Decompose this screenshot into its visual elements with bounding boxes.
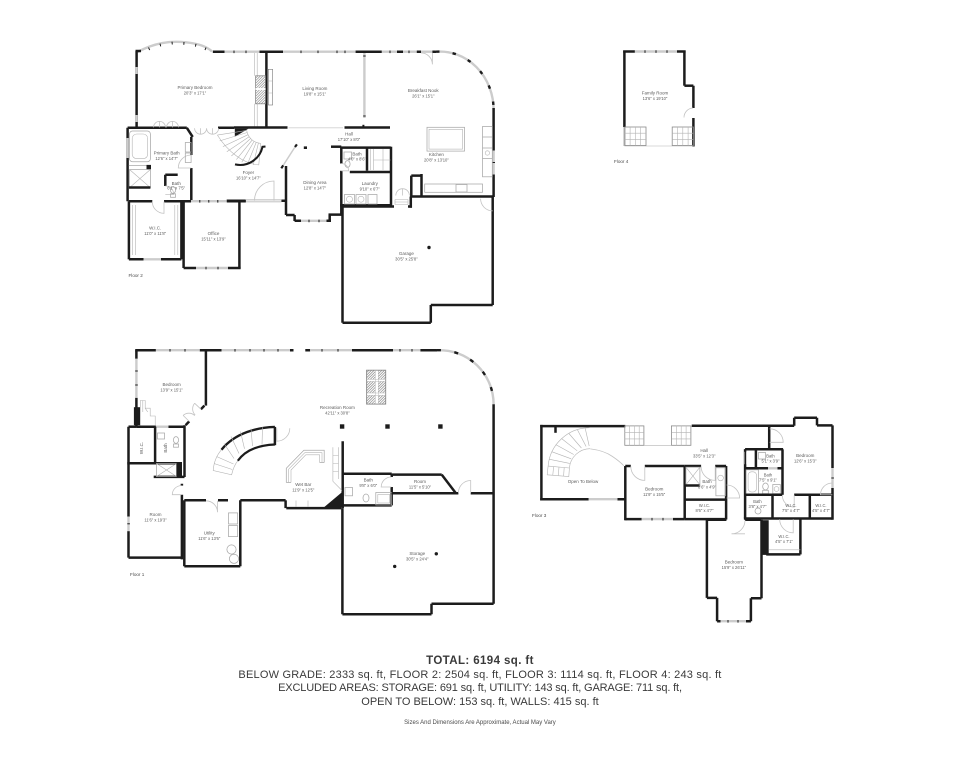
svg-text:7'5" x 4'7": 7'5" x 4'7"	[782, 508, 800, 513]
svg-text:Dining Area: Dining Area	[303, 180, 327, 185]
svg-text:13'6" x 19'10": 13'6" x 19'10"	[643, 96, 668, 101]
svg-text:Storage: Storage	[409, 551, 425, 556]
svg-text:Floor 3: Floor 3	[532, 513, 547, 518]
svg-text:Living Room: Living Room	[302, 86, 327, 91]
svg-text:Primary Bath: Primary Bath	[154, 151, 181, 156]
svg-text:Open To Below: Open To Below	[568, 479, 599, 484]
svg-text:Utility: Utility	[204, 531, 216, 536]
svg-text:8'6" x 4'9": 8'6" x 4'9"	[698, 485, 716, 490]
svg-text:Recreation Room: Recreation Room	[320, 405, 355, 410]
svg-text:13'9" x 15'1": 13'9" x 15'1"	[160, 388, 183, 393]
svg-text:26'1" x 15'1": 26'1" x 15'1"	[412, 94, 435, 99]
svg-text:4'5" x 4'7": 4'5" x 4'7"	[812, 508, 830, 513]
svg-text:Laundry: Laundry	[362, 181, 379, 186]
svg-text:9'8" x 6'0": 9'8" x 6'0"	[359, 483, 377, 488]
svg-text:30'5" x 24'4": 30'5" x 24'4"	[406, 557, 429, 562]
svg-text:Room: Room	[414, 479, 426, 484]
svg-text:Bedroom: Bedroom	[162, 382, 181, 387]
svg-text:Room: Room	[149, 512, 161, 517]
svg-text:Kitchen: Kitchen	[429, 152, 445, 157]
svg-text:11'9" x 15'5": 11'9" x 15'5"	[643, 492, 666, 497]
svg-text:42'11" x 30'8": 42'11" x 30'8"	[325, 411, 350, 416]
svg-text:Bedroom: Bedroom	[796, 453, 815, 458]
svg-text:6'1" x 7'5": 6'1" x 7'5"	[167, 186, 185, 191]
svg-text:9'10" x 6'7": 9'10" x 6'7"	[360, 187, 381, 192]
svg-text:Wet Bar: Wet Bar	[295, 482, 312, 487]
svg-text:Primary Bedroom: Primary Bedroom	[177, 85, 212, 90]
svg-text:Garage: Garage	[399, 251, 415, 256]
svg-text:8'6" x 4'7": 8'6" x 4'7"	[696, 508, 714, 513]
svg-text:19'8" x 15'1": 19'8" x 15'1"	[304, 92, 327, 97]
svg-text:Bedroom: Bedroom	[645, 487, 664, 492]
svg-text:20'8" x 13'10": 20'8" x 13'10"	[424, 158, 449, 163]
svg-text:16'10" x 14'7": 16'10" x 14'7"	[236, 176, 261, 181]
svg-text:Bath: Bath	[702, 479, 712, 484]
svg-text:Bath: Bath	[364, 478, 374, 483]
svg-text:Bedroom: Bedroom	[725, 560, 744, 565]
svg-text:15'9" x 26'11": 15'9" x 26'11"	[722, 565, 747, 570]
svg-text:17'10" x 8'0": 17'10" x 8'0"	[338, 137, 361, 142]
svg-text:11'0" x 11'8": 11'0" x 11'8"	[144, 231, 166, 236]
svg-text:12'6" x 14'7": 12'6" x 14'7"	[155, 156, 178, 161]
svg-text:Floor 4: Floor 4	[614, 159, 629, 164]
svg-text:5'1" x 3'9": 5'1" x 3'9"	[762, 459, 780, 464]
svg-text:Floor 2: Floor 2	[129, 273, 144, 278]
svg-text:11'6" x 13'6": 11'6" x 13'6"	[198, 536, 221, 541]
svg-text:7'5" x 9'1": 7'5" x 9'1"	[759, 478, 777, 483]
svg-text:15'11" x 13'9": 15'11" x 13'9"	[201, 237, 226, 242]
svg-text:4'5" x 7'1": 4'5" x 7'1"	[775, 539, 793, 544]
svg-text:Hall: Hall	[700, 448, 708, 453]
svg-text:4'0" x 8'6": 4'0" x 8'6"	[348, 157, 366, 162]
svg-text:12'6" x 15'3": 12'6" x 15'3"	[794, 459, 817, 464]
svg-text:Office: Office	[208, 231, 220, 236]
svg-text:3'8" x 4'7": 3'8" x 4'7"	[749, 504, 767, 509]
svg-text:20'3" x 17'1": 20'3" x 17'1"	[184, 91, 207, 96]
svg-text:Floor 1: Floor 1	[130, 572, 145, 577]
svg-text:Bath: Bath	[163, 443, 168, 453]
svg-text:11'5" x 5'10": 11'5" x 5'10"	[409, 485, 432, 490]
svg-text:Breakfast Nook: Breakfast Nook	[408, 88, 440, 93]
svg-text:33'5" x 12'3": 33'5" x 12'3"	[693, 454, 716, 459]
svg-text:12'8" x 14'7": 12'8" x 14'7"	[304, 186, 327, 191]
svg-text:11'9" x 12'5": 11'9" x 12'5"	[292, 488, 315, 493]
svg-text:11'6" x 19'3": 11'6" x 19'3"	[144, 518, 167, 523]
svg-text:W.I.C.: W.I.C.	[139, 442, 144, 454]
svg-text:30'5" x 25'8": 30'5" x 25'8"	[395, 257, 418, 262]
svg-text:Family Room: Family Room	[642, 91, 669, 96]
svg-text:Hall: Hall	[345, 132, 353, 137]
svg-text:Foyer: Foyer	[243, 170, 255, 175]
svg-text:W.I.C.: W.I.C.	[149, 226, 161, 231]
